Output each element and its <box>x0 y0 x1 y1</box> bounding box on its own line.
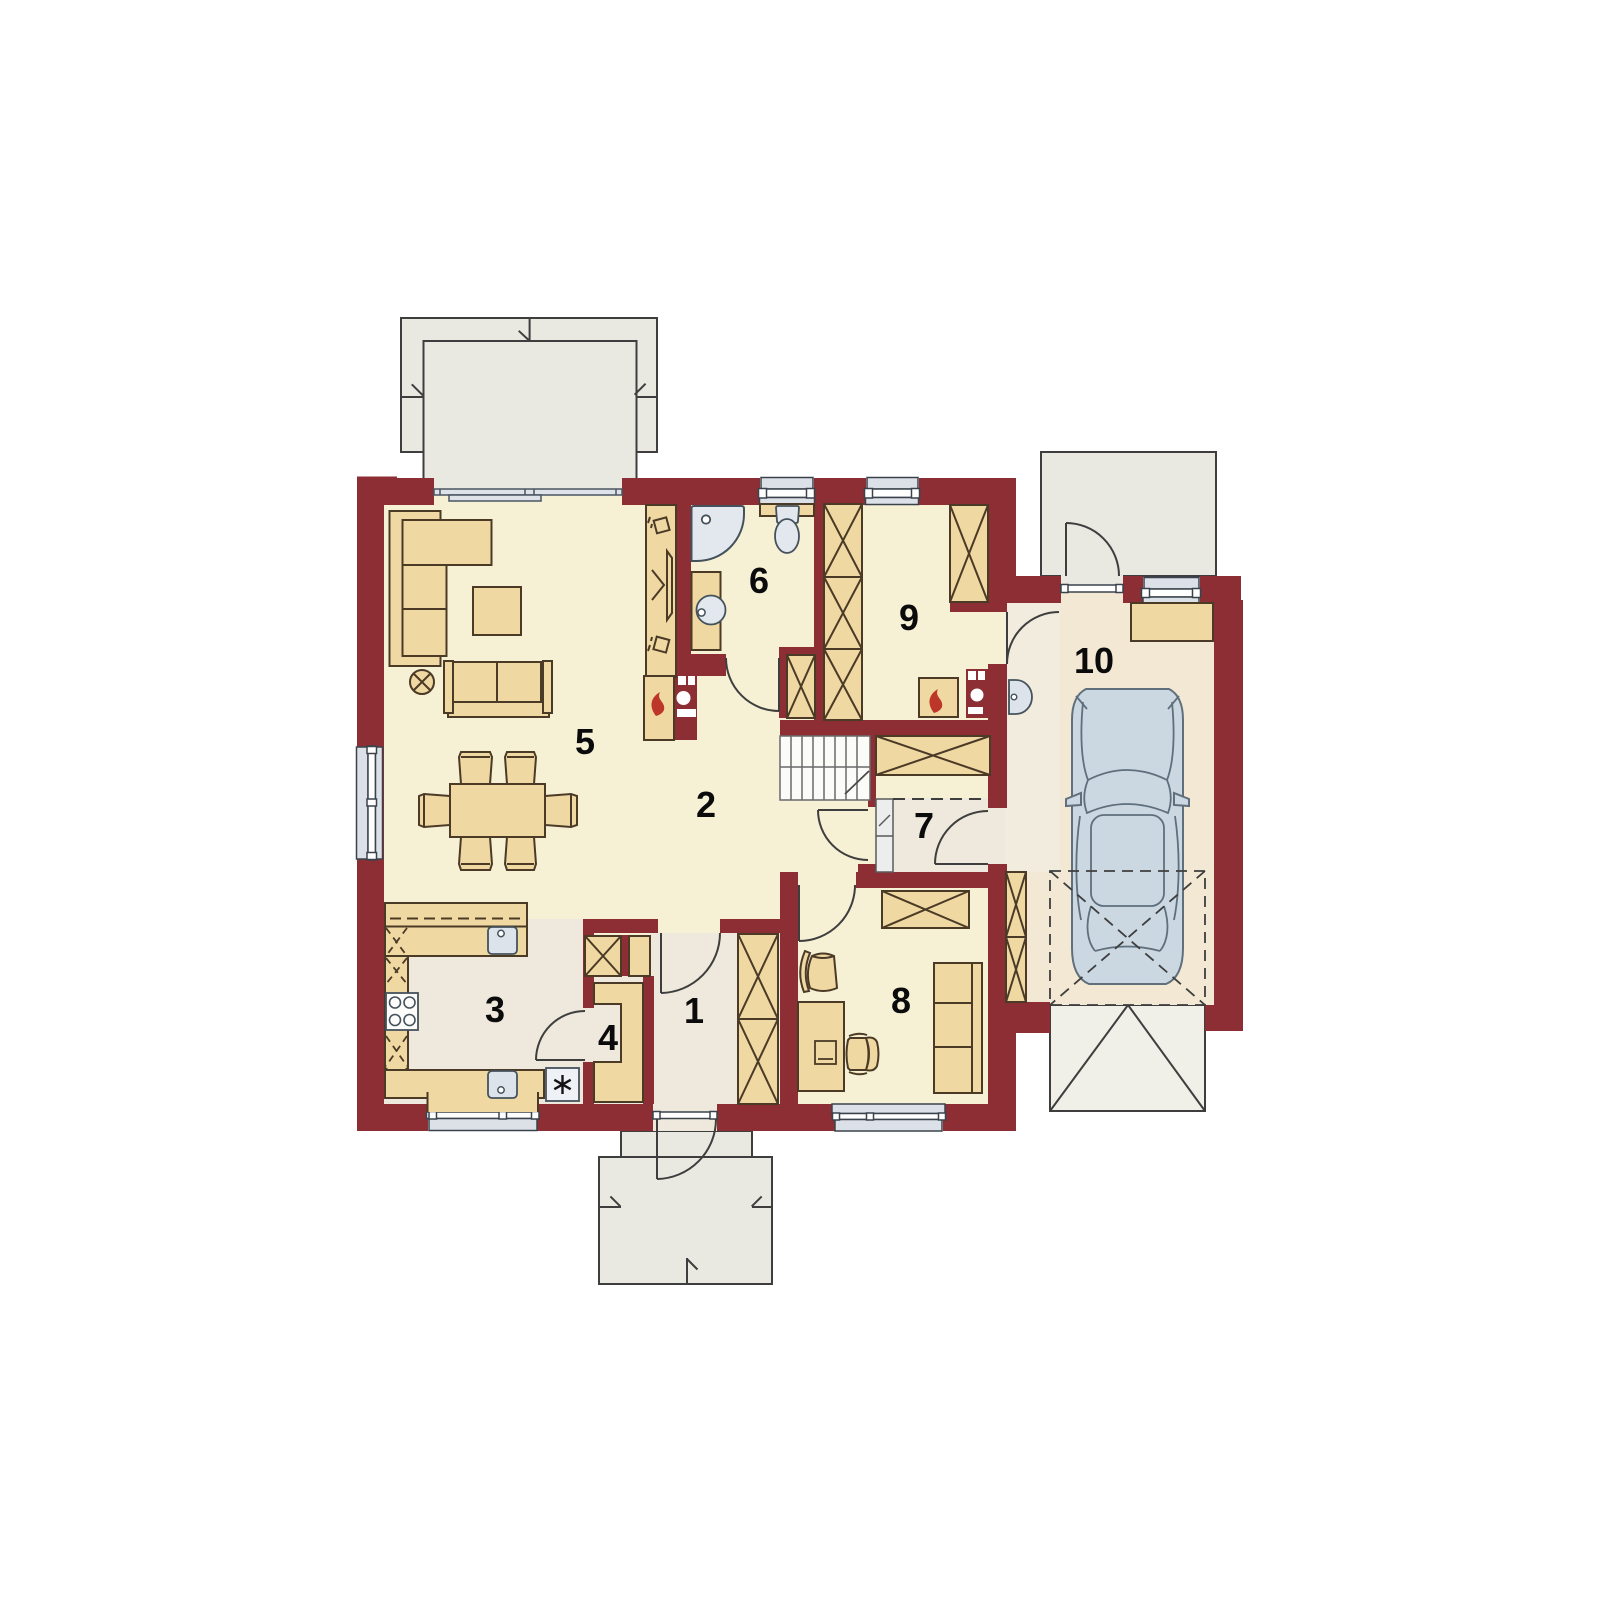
svg-text:4: 4 <box>598 1017 618 1058</box>
svg-text:9: 9 <box>899 597 919 638</box>
svg-text:5: 5 <box>575 721 595 762</box>
svg-text:7: 7 <box>914 805 934 846</box>
svg-text:6: 6 <box>749 560 769 601</box>
svg-text:10: 10 <box>1074 640 1114 681</box>
svg-text:2: 2 <box>696 784 716 825</box>
svg-text:3: 3 <box>485 989 505 1030</box>
svg-text:1: 1 <box>684 990 704 1031</box>
svg-text:8: 8 <box>891 980 911 1021</box>
